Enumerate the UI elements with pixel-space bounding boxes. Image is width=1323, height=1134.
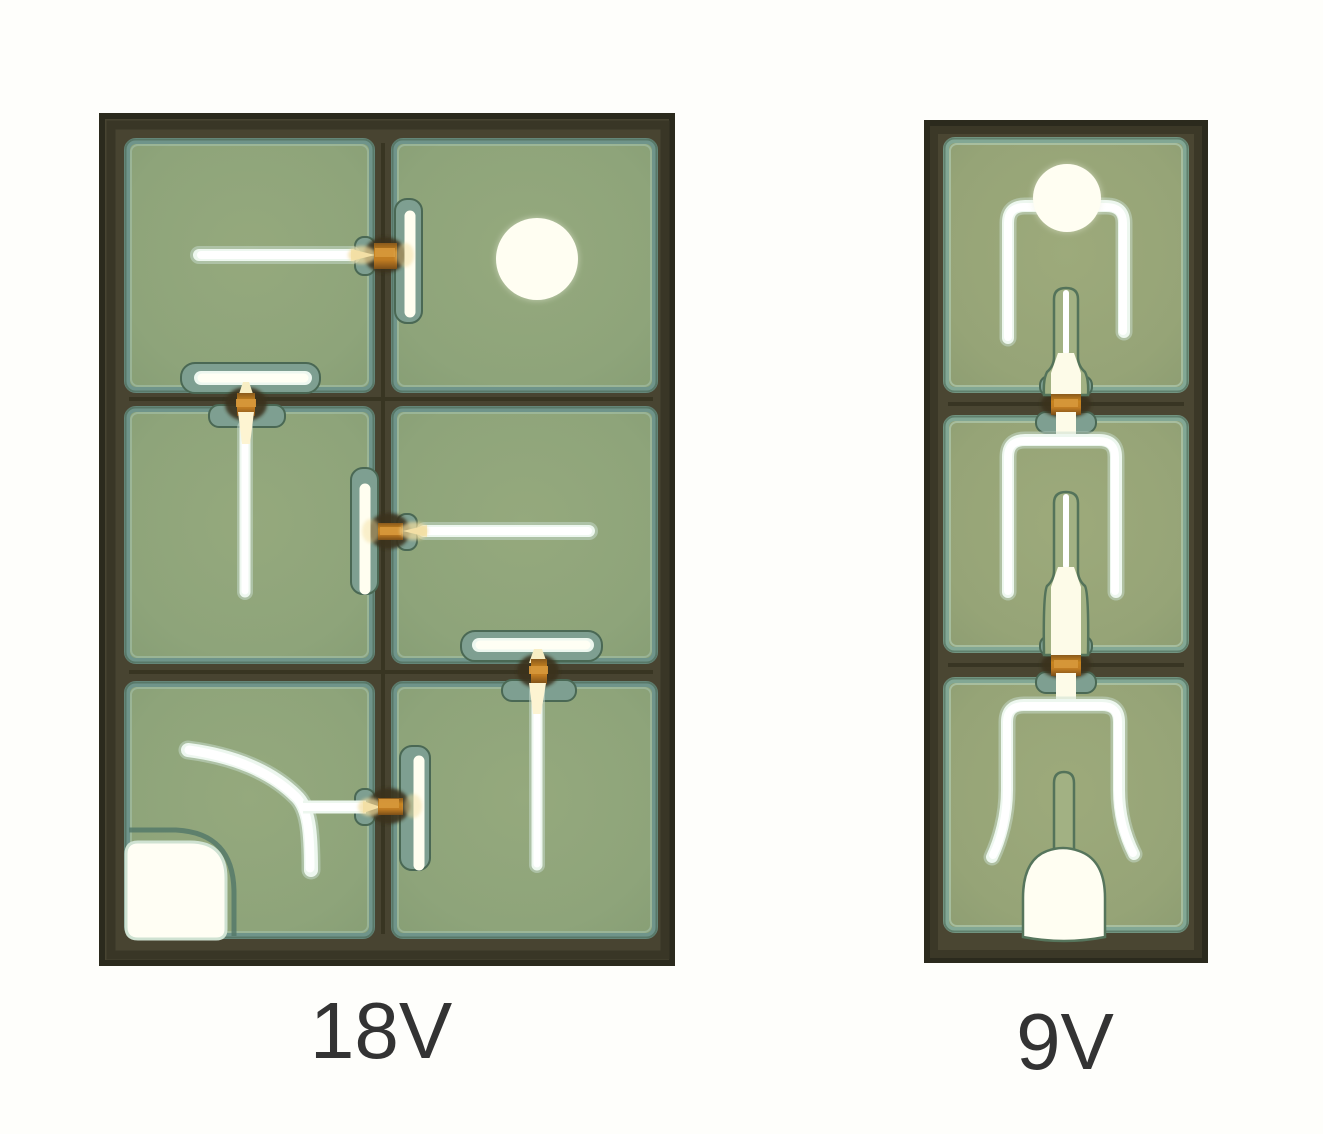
svg-text:9V: 9V	[1016, 997, 1114, 1086]
svg-text:18V: 18V	[310, 986, 453, 1075]
